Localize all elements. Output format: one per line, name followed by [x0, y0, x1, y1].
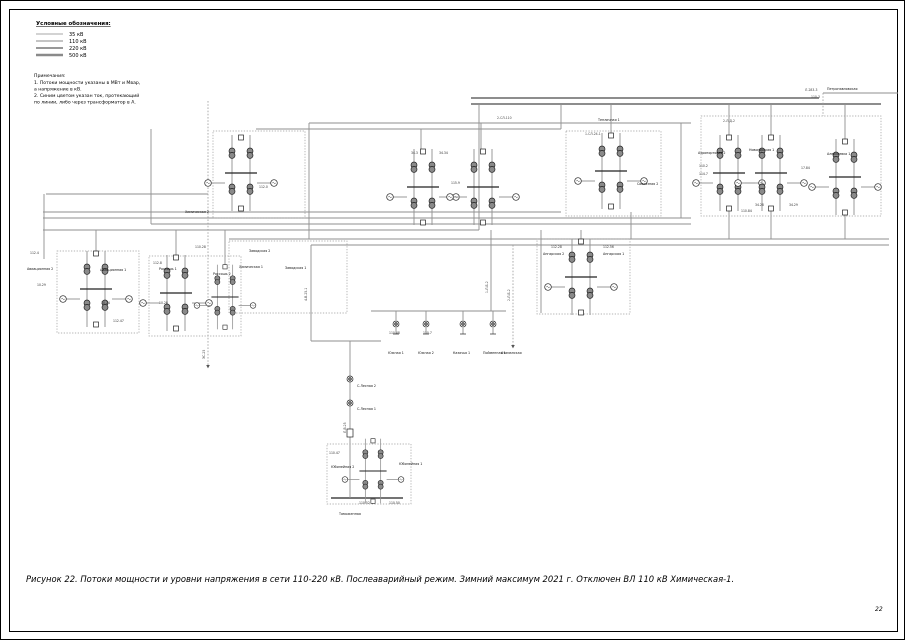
line-label: 1-СЛ-24-1	[585, 132, 601, 136]
line-label: 4-В-25-1	[304, 288, 308, 301]
value-label: 110.48	[389, 331, 400, 335]
network-diagram: Петропавловская Аэропортовая 2 Новогорск…	[27, 87, 898, 516]
value-label: 34.29	[789, 203, 798, 207]
substation-label: Алексеевка 1	[827, 152, 850, 156]
substation-label: С.Лесная 2	[357, 384, 376, 388]
substation-label: Авиационная 1	[100, 268, 126, 272]
substation-alekseevka	[809, 139, 882, 215]
substation-label: Химическая 2	[185, 210, 209, 214]
breaker-box	[347, 429, 353, 437]
value-label: 110.84	[741, 209, 752, 213]
substation-label: Южная 1	[388, 351, 404, 355]
transformer-slesnaya-2	[347, 376, 353, 382]
note-line: а напряжение в кВ.	[34, 87, 82, 93]
value-label: 10.24	[101, 301, 110, 305]
note-line: Примечания:	[34, 73, 66, 79]
substation-teplichnaya	[575, 133, 648, 209]
substation-boundary	[229, 241, 347, 313]
substation-label: Пойменная 1	[483, 351, 506, 355]
substation-label: Новогорская 1	[749, 148, 774, 152]
substation-label: Аэропортовая 2	[698, 151, 725, 155]
substation-label: Россошь 1	[159, 267, 177, 271]
substation-center-b	[447, 149, 520, 225]
value-label: 10.28	[159, 301, 168, 305]
line-label: ЭС-25	[202, 350, 206, 359]
page-frame	[10, 10, 898, 632]
substation-label: Юбилейная 2	[331, 465, 354, 469]
substation-yubileynaya	[342, 439, 404, 504]
value-label: 112.4	[30, 251, 39, 255]
page-number: 22	[875, 606, 883, 613]
line-label: 2-Л-Б-2	[507, 289, 511, 301]
transformer-slesnaya-1	[347, 400, 353, 406]
substation-label: Южная 2	[418, 351, 434, 355]
substation-label: Россошь 2	[213, 272, 231, 276]
substation-boundary	[57, 251, 139, 333]
substation-label: Тепличная 1	[597, 118, 620, 122]
legend: Условные обозначения: 35 кВ 110 кВ 220 к…	[36, 20, 111, 59]
value-label: 110.50	[389, 501, 400, 505]
substation-label: Ангарская 2	[543, 252, 564, 256]
line-label: 2-Л-Д-2	[723, 119, 735, 123]
value-label: 112.28	[551, 245, 562, 249]
value-label: 110.47	[329, 451, 340, 455]
substation-label: С.Лесная 1	[357, 407, 376, 411]
value-label: 112.47	[113, 319, 124, 323]
note-line: 1. Потоки мощности указаны в МВт и Мвар,	[34, 80, 141, 86]
line-label: 110-3	[811, 95, 820, 99]
substation-label: Ангарская 1	[603, 252, 624, 256]
substation-label: Совхозная 2	[637, 182, 658, 186]
substation-label: Петропавловская	[827, 87, 858, 91]
arrow-atamanskaya	[511, 345, 515, 348]
value-label: 110.28	[195, 245, 206, 249]
substation-label: Юбилейная 1	[399, 462, 422, 466]
substation-label: Заводская 1	[285, 266, 306, 270]
legend-label-35kv: 35 кВ	[69, 32, 84, 38]
load-kazachya-1	[460, 311, 466, 334]
substation-boundary	[213, 131, 305, 218]
value-label: 10.29	[37, 283, 46, 287]
load-poymennaya-1	[490, 311, 496, 334]
value-label: 115.9	[451, 181, 460, 185]
value-label: 34.3	[411, 151, 418, 155]
value-label: 110.7	[423, 331, 432, 335]
substation-label: Таможенная	[338, 512, 361, 516]
substation-center-a	[387, 149, 460, 225]
arrow-es25	[206, 365, 210, 368]
legend-label-220kv: 220 кВ	[69, 46, 87, 52]
line-label: 1-Л-Б-2	[485, 281, 489, 293]
value-label: 114.7	[699, 172, 708, 176]
substation-label: Авиационная 2	[27, 267, 53, 271]
value-label: 34.34	[439, 151, 448, 155]
substation-label: Заводская 2	[249, 249, 270, 253]
substation-khimicheskaya-2	[205, 135, 278, 211]
substation-label: Химическая 1	[239, 265, 263, 269]
figure-caption: Рисунок 22. Потоки мощности и уровни нап…	[26, 574, 734, 584]
line-label: Л-283-3	[805, 88, 817, 92]
value-label: 17.84	[801, 166, 810, 170]
substation-aviatsionnaya	[60, 251, 133, 327]
notes: Примечания: 1. Потоки мощности указаны в…	[34, 73, 141, 106]
page: Условные обозначения: 35 кВ 110 кВ 220 к…	[0, 0, 905, 640]
substation-angarskaya	[545, 239, 618, 315]
legend-label-500kv: 500 кВ	[69, 53, 87, 59]
figure-page: Условные обозначения: 35 кВ 110 кВ 220 к…	[1, 1, 905, 640]
value-label: 34.28	[755, 203, 764, 207]
legend-label-110kv: 110 кВ	[69, 39, 87, 45]
value-label: 110.2	[699, 164, 708, 168]
value-label: 110.52	[359, 501, 370, 505]
line-label: 2-СЛ-110	[497, 116, 512, 120]
line-label: Л-В-25	[343, 422, 347, 433]
substation-label: Казачья 1	[453, 351, 470, 355]
note-line: по линии, либо через трансформатор в А.	[34, 100, 136, 106]
substation-novogorskaya	[735, 135, 808, 211]
value-label: 112.0	[259, 185, 268, 189]
note-line: 2. Синим цветом указан ток, протекающий	[34, 92, 139, 99]
legend-title: Условные обозначения:	[36, 20, 111, 27]
value-label: 112.56	[603, 245, 614, 249]
substation-boundary	[566, 131, 661, 216]
value-label: 112.8	[153, 261, 162, 265]
